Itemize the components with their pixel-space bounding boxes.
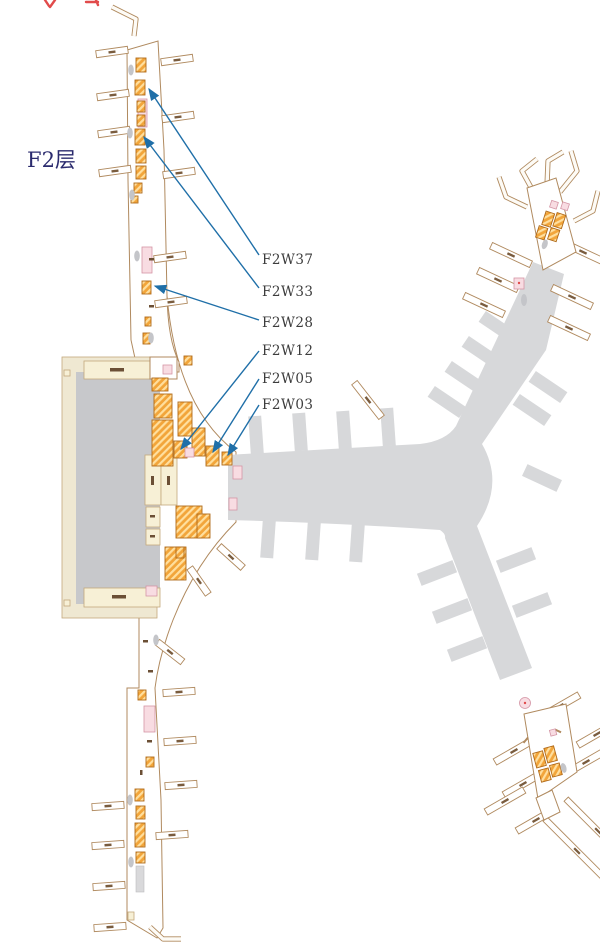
shop-f2w28 <box>142 281 151 294</box>
location-labels: F2W37 F2W33 F2W28 F2W12 F2W05 F2W03 <box>262 252 314 413</box>
shop-f2w33 <box>135 129 145 145</box>
location-label-f2w33: F2W33 <box>262 284 314 300</box>
north-pier-top-bent-bridge <box>112 7 136 36</box>
shop-f2w03 <box>222 452 232 465</box>
south-pier-bottom-bent-bridge <box>150 927 181 939</box>
location-label-f2w03: F2W03 <box>262 397 314 413</box>
location-label-f2w12: F2W12 <box>262 343 314 359</box>
cropped-red-text-fragment <box>45 0 98 7</box>
location-label-f2w28: F2W28 <box>262 315 314 331</box>
shop-f2w37 <box>135 80 145 95</box>
floor-label: F2层 <box>27 148 76 172</box>
southeast-concourse <box>484 692 600 885</box>
location-label-f2w37: F2W37 <box>262 252 314 268</box>
terminal-map: F2W37 F2W33 F2W28 F2W12 F2W05 F2W03 F2层 <box>0 0 600 944</box>
shop-f2w05 <box>206 446 219 466</box>
terminal-map-viewport: F2W37 F2W33 F2W28 F2W12 F2W05 F2W03 F2层 <box>0 0 600 944</box>
location-label-f2w05: F2W05 <box>262 371 314 387</box>
